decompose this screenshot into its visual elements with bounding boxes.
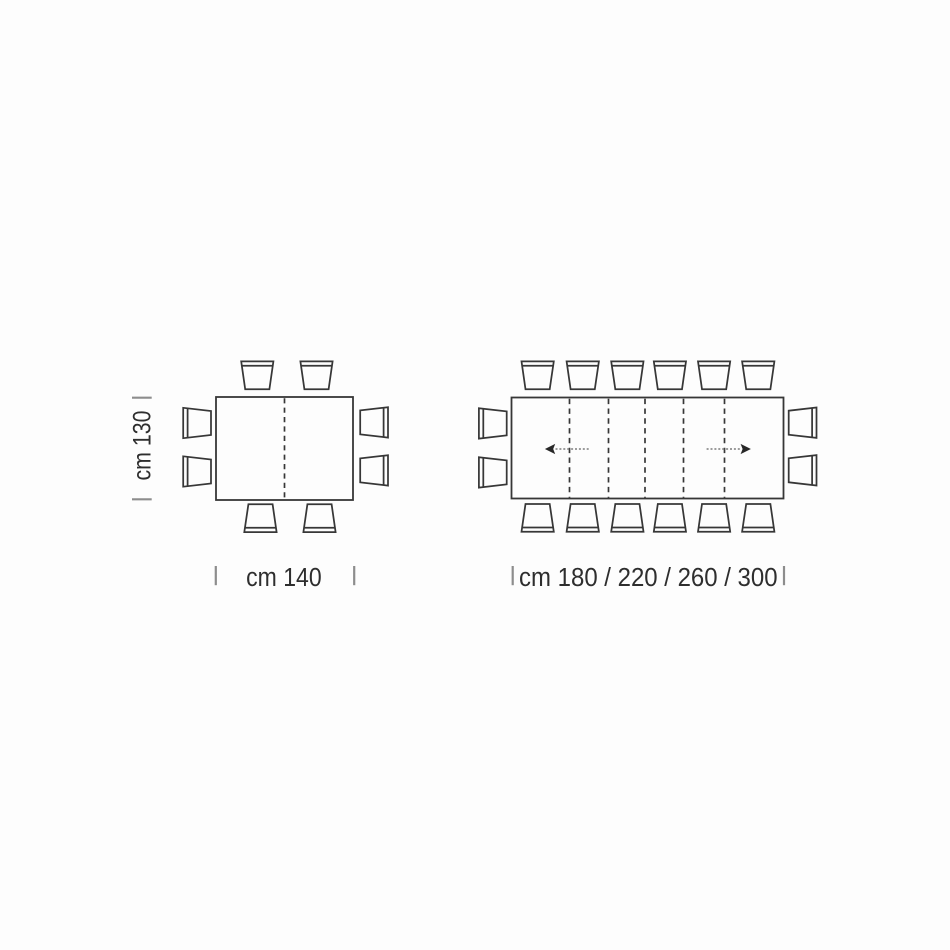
svg-text:cm 140: cm 140: [246, 562, 322, 592]
svg-text:cm 180 / 220 / 260 / 300: cm 180 / 220 / 260 / 300: [519, 562, 778, 592]
svg-text:cm 130: cm 130: [130, 411, 157, 481]
